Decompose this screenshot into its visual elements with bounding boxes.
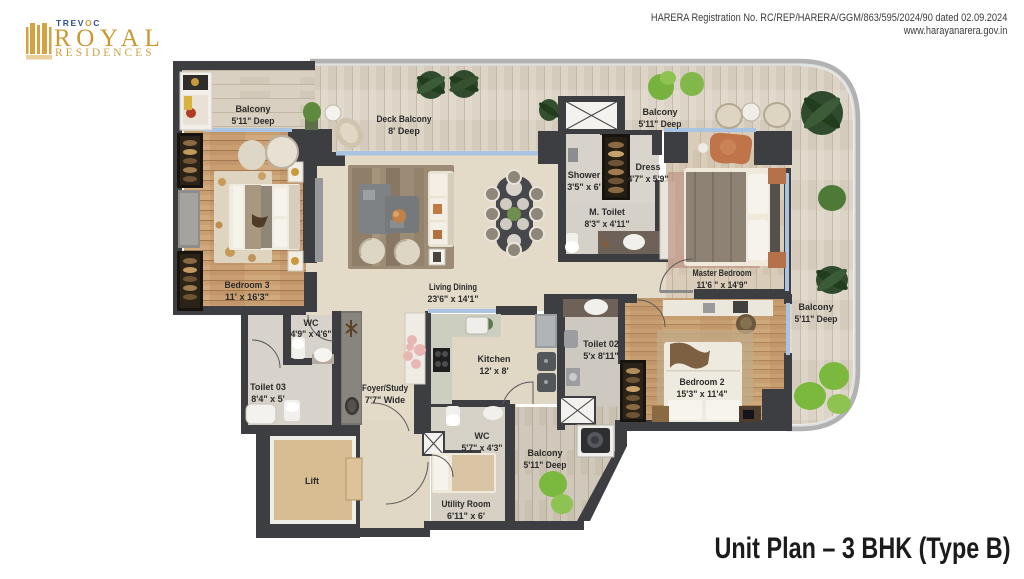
svg-text:Shower: Shower — [568, 170, 601, 180]
svg-text:23'6" x 14'1": 23'6" x 14'1" — [428, 294, 479, 304]
svg-text:Foyer/Study: Foyer/Study — [362, 383, 408, 393]
svg-text:8'4" x 5': 8'4" x 5' — [251, 394, 285, 404]
svg-text:8' Deep: 8' Deep — [388, 126, 420, 136]
svg-text:M. Toilet: M. Toilet — [589, 207, 625, 217]
svg-text:Master Bedroom: Master Bedroom — [693, 268, 752, 278]
svg-text:Kitchen: Kitchen — [477, 354, 510, 364]
svg-text:11' x 16'3": 11' x 16'3" — [225, 292, 269, 302]
svg-text:5'11" Deep: 5'11" Deep — [524, 460, 567, 470]
svg-text:5'11" Deep: 5'11" Deep — [795, 314, 838, 324]
svg-text:Bedroom 3: Bedroom 3 — [225, 280, 270, 290]
svg-text:15'3" x 11'4": 15'3" x 11'4" — [677, 389, 728, 399]
svg-text:4'9" x 4'6": 4'9" x 4'6" — [291, 329, 332, 339]
svg-text:4'7" x 5'9": 4'7" x 5'9" — [628, 174, 669, 184]
svg-text:WC: WC — [304, 318, 319, 328]
svg-text:Balcony: Balcony — [527, 448, 562, 458]
svg-text:11'6 " x 14'9": 11'6 " x 14'9" — [697, 280, 748, 290]
svg-text:Balcony: Balcony — [642, 107, 677, 117]
svg-text:Balcony: Balcony — [798, 302, 833, 312]
svg-text:Utility Room: Utility Room — [442, 499, 491, 509]
svg-text:5'x 8'11": 5'x 8'11" — [583, 351, 619, 361]
svg-text:Dress: Dress — [635, 162, 660, 172]
svg-text:5'7" x 4'3": 5'7" x 4'3" — [462, 443, 503, 453]
svg-text:Balcony: Balcony — [235, 104, 270, 114]
svg-text:Bedroom 2: Bedroom 2 — [680, 377, 725, 387]
svg-text:Deck Balcony: Deck Balcony — [377, 114, 432, 124]
svg-text:7'7" Wide: 7'7" Wide — [365, 395, 405, 405]
svg-text:Toilet 02: Toilet 02 — [583, 339, 619, 349]
svg-text:8'3" x 4'11": 8'3" x 4'11" — [585, 219, 630, 229]
svg-text:Toilet 03: Toilet 03 — [250, 382, 286, 392]
svg-text:12' x 8': 12' x 8' — [479, 366, 508, 376]
svg-text:Lift: Lift — [305, 476, 319, 486]
svg-text:Living Dining: Living Dining — [429, 282, 477, 292]
svg-text:3'5" x 6': 3'5" x 6' — [567, 182, 601, 192]
svg-text:6'11" x 6': 6'11" x 6' — [447, 511, 485, 521]
svg-text:WC: WC — [475, 431, 490, 441]
svg-text:5'11" Deep: 5'11" Deep — [232, 116, 275, 126]
svg-text:5'11" Deep: 5'11" Deep — [639, 119, 682, 129]
